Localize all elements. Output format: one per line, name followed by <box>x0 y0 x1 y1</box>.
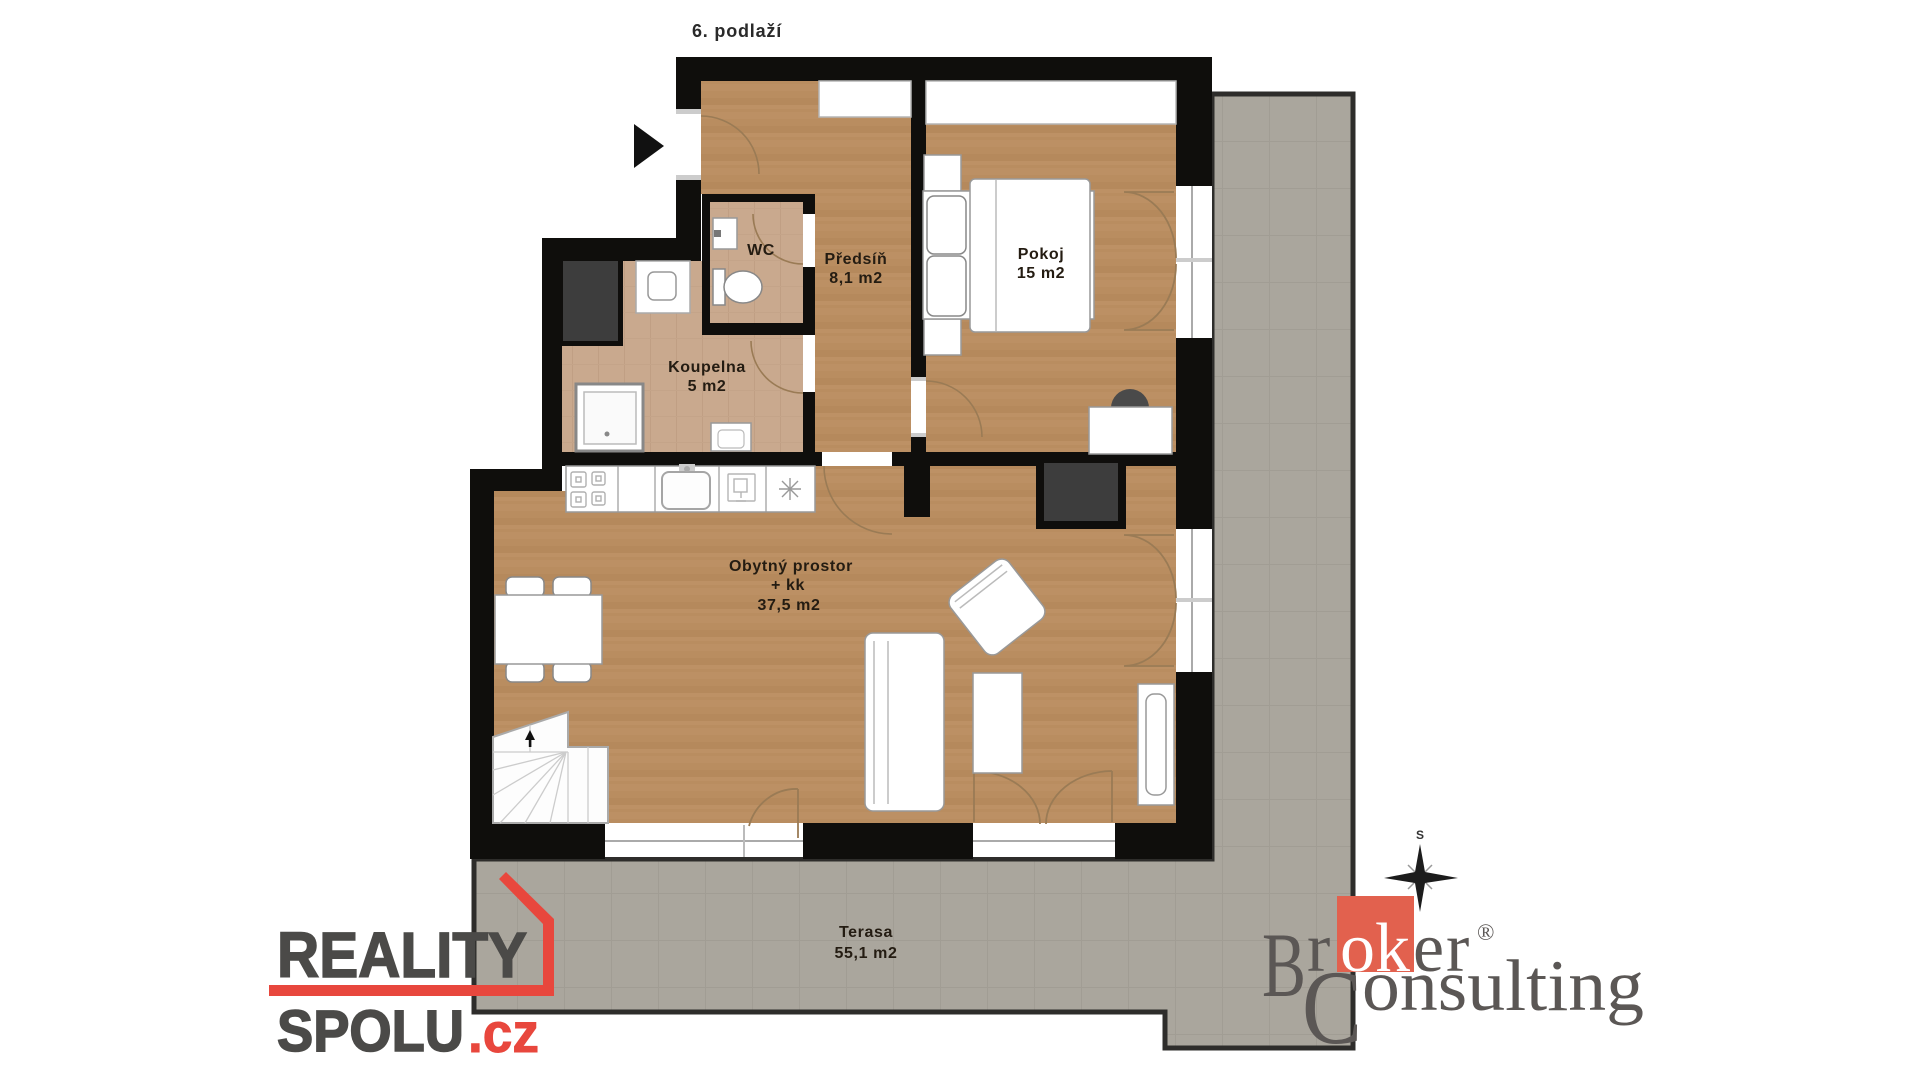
svg-text:WC: WC <box>747 242 775 259</box>
svg-text:Terasa: Terasa <box>839 924 893 941</box>
svg-text:Obytný prostor: Obytný prostor <box>729 558 853 575</box>
svg-text:C: C <box>1302 949 1362 1066</box>
svg-text:B: B <box>1262 914 1306 1016</box>
svg-text:+ kk: + kk <box>771 577 805 594</box>
svg-text:Pokoj: Pokoj <box>1018 246 1065 263</box>
svg-text:37,5 m2: 37,5 m2 <box>758 597 821 614</box>
svg-text:SPOLU: SPOLU <box>277 999 464 1064</box>
svg-text:15 m2: 15 m2 <box>1017 265 1065 282</box>
svg-text:5 m2: 5 m2 <box>688 378 727 395</box>
svg-text:6. podlaží: 6. podlaží <box>692 21 782 41</box>
svg-text:®: ® <box>1477 920 1494 945</box>
svg-text:8,1 m2: 8,1 m2 <box>829 270 882 287</box>
svg-text:onsulting: onsulting <box>1362 945 1644 1026</box>
svg-text:Koupelna: Koupelna <box>668 359 746 376</box>
svg-text:S: S <box>1416 828 1424 842</box>
svg-text:REALITY: REALITY <box>277 919 527 991</box>
svg-text:.cz: .cz <box>468 1001 539 1064</box>
svg-text:Předsíň: Předsíň <box>825 251 888 268</box>
svg-text:55,1 m2: 55,1 m2 <box>835 945 898 962</box>
